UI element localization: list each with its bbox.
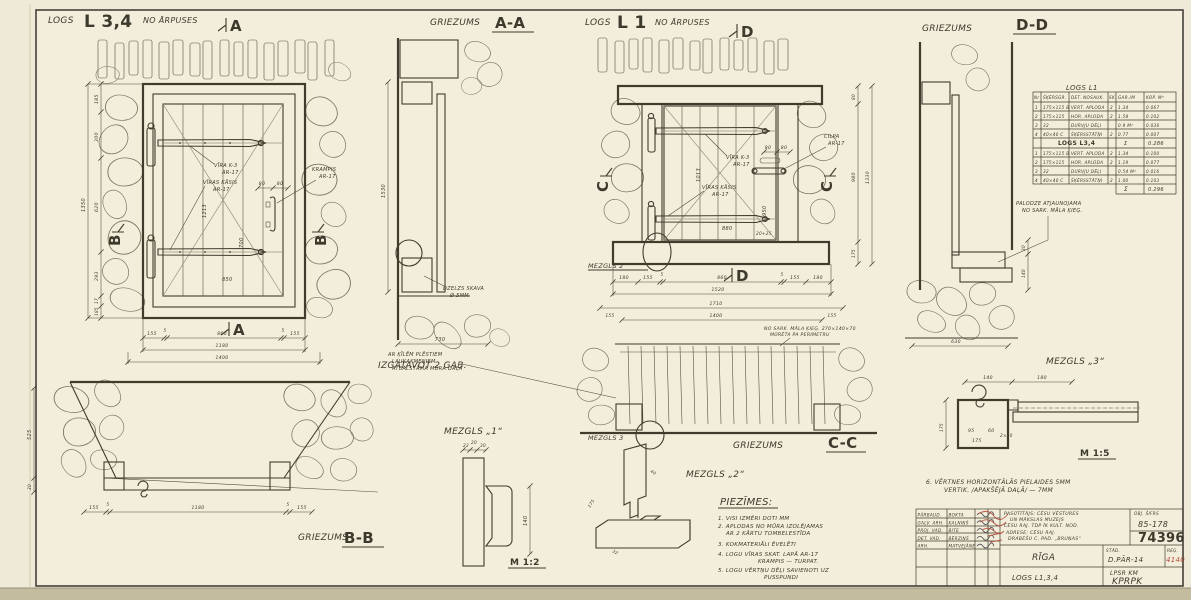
object-code: 85-178 (1138, 520, 1168, 529)
note-line: AR 2 KĀRTU TOMBELESTĪDA (725, 530, 811, 537)
dim-label: 175 (851, 249, 856, 258)
table-cell: DURVJU DĒĻI (1071, 123, 1102, 128)
dim-label: 180 (813, 275, 823, 281)
dim-label: 155 (606, 313, 615, 318)
col-header: GAR./M (1118, 95, 1135, 100)
sheet-subject: LOGS L1,3,4 (1012, 574, 1058, 582)
table-cell: 4 (1035, 178, 1038, 183)
dim-label: 860 (217, 331, 227, 337)
dim-label: 155 (643, 275, 653, 281)
table-cell: 2 (1110, 178, 1113, 183)
table-cell: 40×40 C (1043, 178, 1064, 183)
section-title: GRIEZUMS (298, 533, 348, 543)
reg-value: 4140 (1166, 556, 1185, 564)
dim-label: 80 (259, 181, 265, 187)
dim-label: 140 (983, 375, 993, 381)
table-cell: HOR. APLODA (1071, 160, 1103, 165)
table-cell: 0.007 (1146, 132, 1160, 137)
dim-label: 1180 (216, 343, 229, 349)
svg-text:NO SARK. MĀLA ĶIEĢ.: NO SARK. MĀLA ĶIEĢ. (1022, 207, 1082, 214)
org-line: KPRPK (1112, 577, 1143, 587)
table-cell: VERT. APLODA (1071, 151, 1105, 156)
dim-label: 20 (471, 440, 477, 445)
col-header: KOP. M³ (1146, 95, 1164, 100)
table-title: LOGS L1 (1066, 84, 1098, 92)
stad-label: STĀD. (1106, 548, 1120, 553)
svg-text:DZELZS SKAVA: DZELZS SKAVA (443, 286, 484, 292)
dim-label: 140 (1021, 269, 1026, 278)
table-cell: 2 (1110, 160, 1113, 165)
note-6: 6. VĒRTNES HORIZONTĀLĀS PIELAIDES 5MM VE… (926, 479, 1071, 494)
dim-label: 80 (765, 145, 771, 151)
sum-value: 0.296 (1148, 187, 1164, 193)
note-line: VERTIK. /APAKŠĒJĀ DAĻĀ/ — 7MM (944, 487, 1054, 494)
dim-label: 175 (939, 423, 944, 432)
section-title: GRIEZUMS (922, 24, 972, 34)
drawing-title: LOGS (585, 18, 611, 28)
table-cell: 1 (1035, 151, 1038, 156)
table-cell: 2 (1035, 114, 1038, 119)
dim-label: 22 (463, 443, 469, 448)
dim-label: 185 (94, 94, 100, 104)
dim-label: 5 (781, 272, 784, 277)
drawing-title: LOGS (48, 16, 74, 26)
staff-name: KALNIŅŠ (949, 520, 969, 525)
table-cell: 175×115 B (1043, 151, 1069, 156)
table-cell: 0.016 (1146, 169, 1160, 174)
table-cell: DURVJU DĒĻI (1071, 169, 1102, 174)
client-line: PASŪTĪTĀJS: CĒSU VĒSTURES (1004, 510, 1079, 517)
dim-label: 155 (790, 275, 800, 281)
notes-heading: PIEZĪMES: (720, 495, 772, 508)
dim-label: 5 (287, 502, 290, 507)
dim-label: 30 (27, 484, 32, 490)
dim-label: 5 (661, 272, 664, 277)
table-cell: 0.77 (1118, 132, 1129, 137)
table-cell: 1.34 (1118, 151, 1129, 156)
svg-text:MŪRĒTA PA PERIMETRU: MŪRĒTA PA PERIMETRU (770, 331, 830, 338)
dim-label: 880 (722, 226, 732, 232)
table-cell: 2 (1110, 114, 1113, 119)
table-cell: 1.34 (1118, 105, 1129, 110)
dim-label: 95 (968, 428, 974, 434)
svg-text:AR-17: AR-17 (318, 174, 336, 180)
sum-symbol: Σ (1124, 141, 1128, 147)
dim-label: 180 (1037, 375, 1047, 381)
sum-symbol: Σ (1124, 186, 1128, 193)
stad-value: D.PĀR-14 (1108, 555, 1143, 564)
svg-text:AR-17: AR-17 (732, 162, 750, 168)
note-line: 1. VISI IZMĒRI DOTI MM (718, 515, 789, 522)
dim-label: 30 (1021, 245, 1026, 251)
table-cell: ŠĶĒRSSTĀTŅI (1071, 132, 1103, 137)
table-cell: 0.067 (1146, 105, 1160, 110)
dim-label: 155 (290, 331, 300, 337)
svg-text:AR ĶĪLĒM PLĒSTIEM: AR ĶĪLĒM PLĒSTIEM (387, 351, 443, 358)
staff-name: MATVEJĀNE (949, 544, 976, 549)
table-cell: 1 (1035, 105, 1038, 110)
table-cell: 40×40 C (1043, 132, 1064, 137)
table-cell: VERT. APLODA (1071, 105, 1105, 110)
table-cell: 2 (1110, 105, 1113, 110)
section-marker-a: A (230, 17, 242, 35)
table-cell: 2 (1110, 151, 1113, 156)
table-cell: 0.100 (1146, 151, 1160, 156)
svg-text:B: B (312, 234, 330, 246)
detail-title: MEZGLS „1“ (444, 427, 502, 437)
client-line: CĒSU RAJ. TDP ĪK KULT. NOD. (1004, 522, 1079, 529)
svg-text:C: C (594, 181, 612, 192)
dim-label: 700 (239, 238, 245, 248)
dim-label: 1530 (381, 184, 387, 198)
table-cell: ŠĶĒRSSTĀTŅI (1071, 178, 1103, 183)
dim-label: 950 (762, 206, 768, 216)
detail-title: MEZGLS „2“ (686, 470, 744, 480)
dim-label: 1330 (865, 171, 871, 184)
col-header: Nr (1034, 95, 1039, 100)
dim-label: 155 (147, 331, 157, 337)
dim-label: 80 (781, 145, 787, 151)
view-label: NO ĀRPUSES (143, 15, 198, 25)
svg-text:CILPA: CILPA (824, 134, 840, 140)
window-code: L 1 (617, 13, 646, 33)
section-title: GRIEZUMS (733, 441, 783, 451)
note-line: KRAMPIS — TURPAT. (758, 559, 819, 565)
dim-label: 860 (717, 275, 727, 281)
order-number: 74396 (1138, 531, 1185, 546)
dim-label: 20+25 (756, 231, 772, 236)
table-cell: 0.102 (1146, 114, 1160, 119)
detail-callout-label: MEZGLS 2 (588, 262, 624, 270)
svg-text:NO SARK. MĀLA ĶIEĢ. 270×140×70: NO SARK. MĀLA ĶIEĢ. 270×140×70 (764, 325, 856, 332)
dim-label: 60 (988, 428, 994, 434)
staff-name: BĒRZIŅŠ (949, 536, 969, 541)
table-cell: 175×115 (1043, 160, 1065, 165)
svg-text:AR-17: AR-17 (212, 187, 230, 193)
dim-label: 5 (282, 328, 285, 333)
table-cell: 0.103 (1146, 178, 1160, 183)
staff-role: PROJ. VAD. (918, 528, 944, 533)
dim-label: 175 (972, 438, 982, 444)
detail-title: MEZGLS „3“ (1046, 357, 1104, 367)
col-header: SK. (1109, 95, 1117, 100)
dim-label: 5 (164, 328, 167, 333)
dim-label: 80 (277, 181, 283, 187)
table-cell: 32 (1043, 123, 1049, 128)
dim-label: 1213 (202, 204, 208, 218)
table-cell: 2 (1110, 132, 1113, 137)
dim-label: 5 (107, 502, 110, 507)
blueprint-svg: LOGS L 3,4 NO ĀRPUSES A 80 (0, 0, 1191, 600)
table-cell: 1.58 (1118, 114, 1129, 119)
section-marker-d: D (736, 267, 749, 285)
svg-text:VĪRAS KĀSIS: VĪRAS KĀSIS (203, 179, 238, 186)
view-label: NO ĀRPUSES (655, 17, 710, 27)
client-line: UN MĀKSLAS MUZEJS (1010, 516, 1064, 523)
section-code: C-C (828, 434, 858, 452)
section-title: GRIEZUMS (430, 18, 480, 28)
staff-role: DET. VAD. (918, 536, 941, 541)
detail-callout-label: MEZGLS 3 (588, 434, 624, 442)
dim-label: 620 (94, 202, 100, 212)
note-line: 2. APLODAS NO MŪRA IZOLĒJAMAS (718, 523, 823, 530)
address-line: ADRESE: CĒSU RAJ. (1005, 529, 1056, 536)
section-code: B-B (344, 529, 374, 547)
note-line: 5. LOGU VĒRTŅU DĒĻI SAVIENOTI UZ (718, 567, 829, 574)
dim-label: 155 (828, 313, 837, 318)
svg-text:PALODZE ATJAUNOJAMA: PALODZE ATJAUNOJAMA (1016, 201, 1082, 207)
dim-label: 30 (480, 443, 486, 448)
svg-text:VĪRA K-3: VĪRA K-3 (214, 162, 238, 169)
col-header: ŠĶĒRSGR. (1043, 95, 1067, 100)
svg-text:VĪRA K-3: VĪRA K-3 (726, 154, 750, 161)
staff-role: GALV. ARH. (918, 520, 944, 525)
note-line: 3. KOKMATERIĀLI ĒVELĒTI (718, 541, 796, 548)
table-cell: 0.077 (1146, 160, 1160, 165)
svg-text:AR-17: AR-17 (711, 192, 729, 198)
table-cell: 175×115 B (1043, 105, 1069, 110)
scale-label: M 1:2 (510, 558, 540, 568)
table-cell: 0.54 M² (1118, 169, 1136, 174)
dim-label: 2×30 (1000, 433, 1013, 438)
object-code-label: OBJ. ŠIFRS (1134, 511, 1159, 516)
dim-label: 80 (851, 94, 856, 100)
table-cell: 3 (1035, 123, 1038, 128)
table-subtitle: LOGS L3,4 (1058, 140, 1095, 147)
svg-text:VĪRAS KĀSIS: VĪRAS KĀSIS (702, 184, 737, 191)
note-line: 6. VĒRTNES HORIZONTĀLĀS PIELAIDES 5MM (926, 479, 1071, 486)
table-cell: 32 (1043, 169, 1049, 174)
col-header: DET. NOSAUK. (1071, 95, 1104, 100)
sum-value: 0.286 (1148, 141, 1164, 147)
dim-label: 140 (523, 516, 529, 526)
dim-label: 1400 (216, 355, 229, 361)
reg-label: REĢ. (1167, 548, 1178, 553)
svg-text:LAUKAKMEŅIEM: LAUKAKMEŅIEM (392, 359, 436, 365)
section-code: A-A (495, 14, 525, 32)
dim-label: 1180 (192, 505, 205, 511)
section-marker-a: A (233, 321, 245, 339)
table-cell: 0.9 M² (1118, 123, 1133, 128)
dim-label: 630 (951, 339, 961, 345)
svg-text:C: C (818, 181, 836, 192)
dim-label: 730 (435, 337, 445, 343)
note-line: 4. LOGU VĪRAS SKAT. LAPĀ AR-17 (718, 551, 819, 558)
address-line: DRABEŠU C. PAD. „BRUŅAS“ (1008, 535, 1081, 542)
staff-name: BOKTA (949, 513, 964, 518)
dim-label: 980 (851, 172, 857, 182)
dim-label: 1710 (710, 301, 723, 307)
dim-label: 185 (94, 307, 99, 316)
drawing-sheet: LOGS L 3,4 NO ĀRPUSES A 80 (0, 0, 1191, 600)
svg-text:KRAMPIS: KRAMPIS (312, 167, 337, 173)
window-code: L 3,4 (84, 12, 132, 32)
table-cell: 1.19 (1118, 160, 1129, 165)
table-cell: 3 (1035, 169, 1038, 174)
table-cell: 0.036 (1146, 123, 1160, 128)
staff-name: BITE (949, 528, 960, 533)
dim-label: 155 (297, 505, 307, 511)
table-cell: 4 (1035, 132, 1038, 137)
svg-text:B: B (106, 234, 124, 246)
table-cell: 175×115 (1043, 114, 1065, 119)
svg-text:AR-17: AR-17 (827, 141, 845, 147)
note-line: PUSSPUNDI (764, 575, 798, 581)
scale-label: M 1:5 (1080, 449, 1110, 459)
staff-role: PĀRBAUD. (918, 513, 942, 518)
dim-label: 180 (619, 275, 629, 281)
dim-label: 1400 (710, 313, 723, 319)
dim-label: 17 (94, 298, 99, 304)
dim-label: 300 (94, 132, 100, 142)
svg-text:Ø 5MM: Ø 5MM (449, 292, 469, 299)
org-line: LPSR KM (1110, 570, 1139, 577)
dim-label: 155 (89, 505, 99, 511)
dim-label: 850 (222, 277, 232, 283)
dim-label: 293 (94, 271, 100, 281)
table-cell: 2 (1035, 160, 1038, 165)
table-cell: 1.00 (1118, 178, 1129, 183)
dim-label: 1520 (712, 287, 725, 293)
svg-text:ATBALSTĀMA MŪRA DAĻA: ATBALSTĀMA MŪRA DAĻA (391, 365, 463, 372)
svg-text:AR-17: AR-17 (221, 170, 239, 176)
staff-role: ARH. (917, 544, 929, 549)
dim-label: 525 (27, 430, 33, 440)
section-code: D-D (1016, 16, 1048, 34)
table-cell: HOR. APLODA (1071, 114, 1103, 119)
city: RĪGA (1032, 552, 1055, 563)
dim-label: 1013 (696, 168, 702, 182)
dim-label: 1350 (81, 198, 87, 212)
